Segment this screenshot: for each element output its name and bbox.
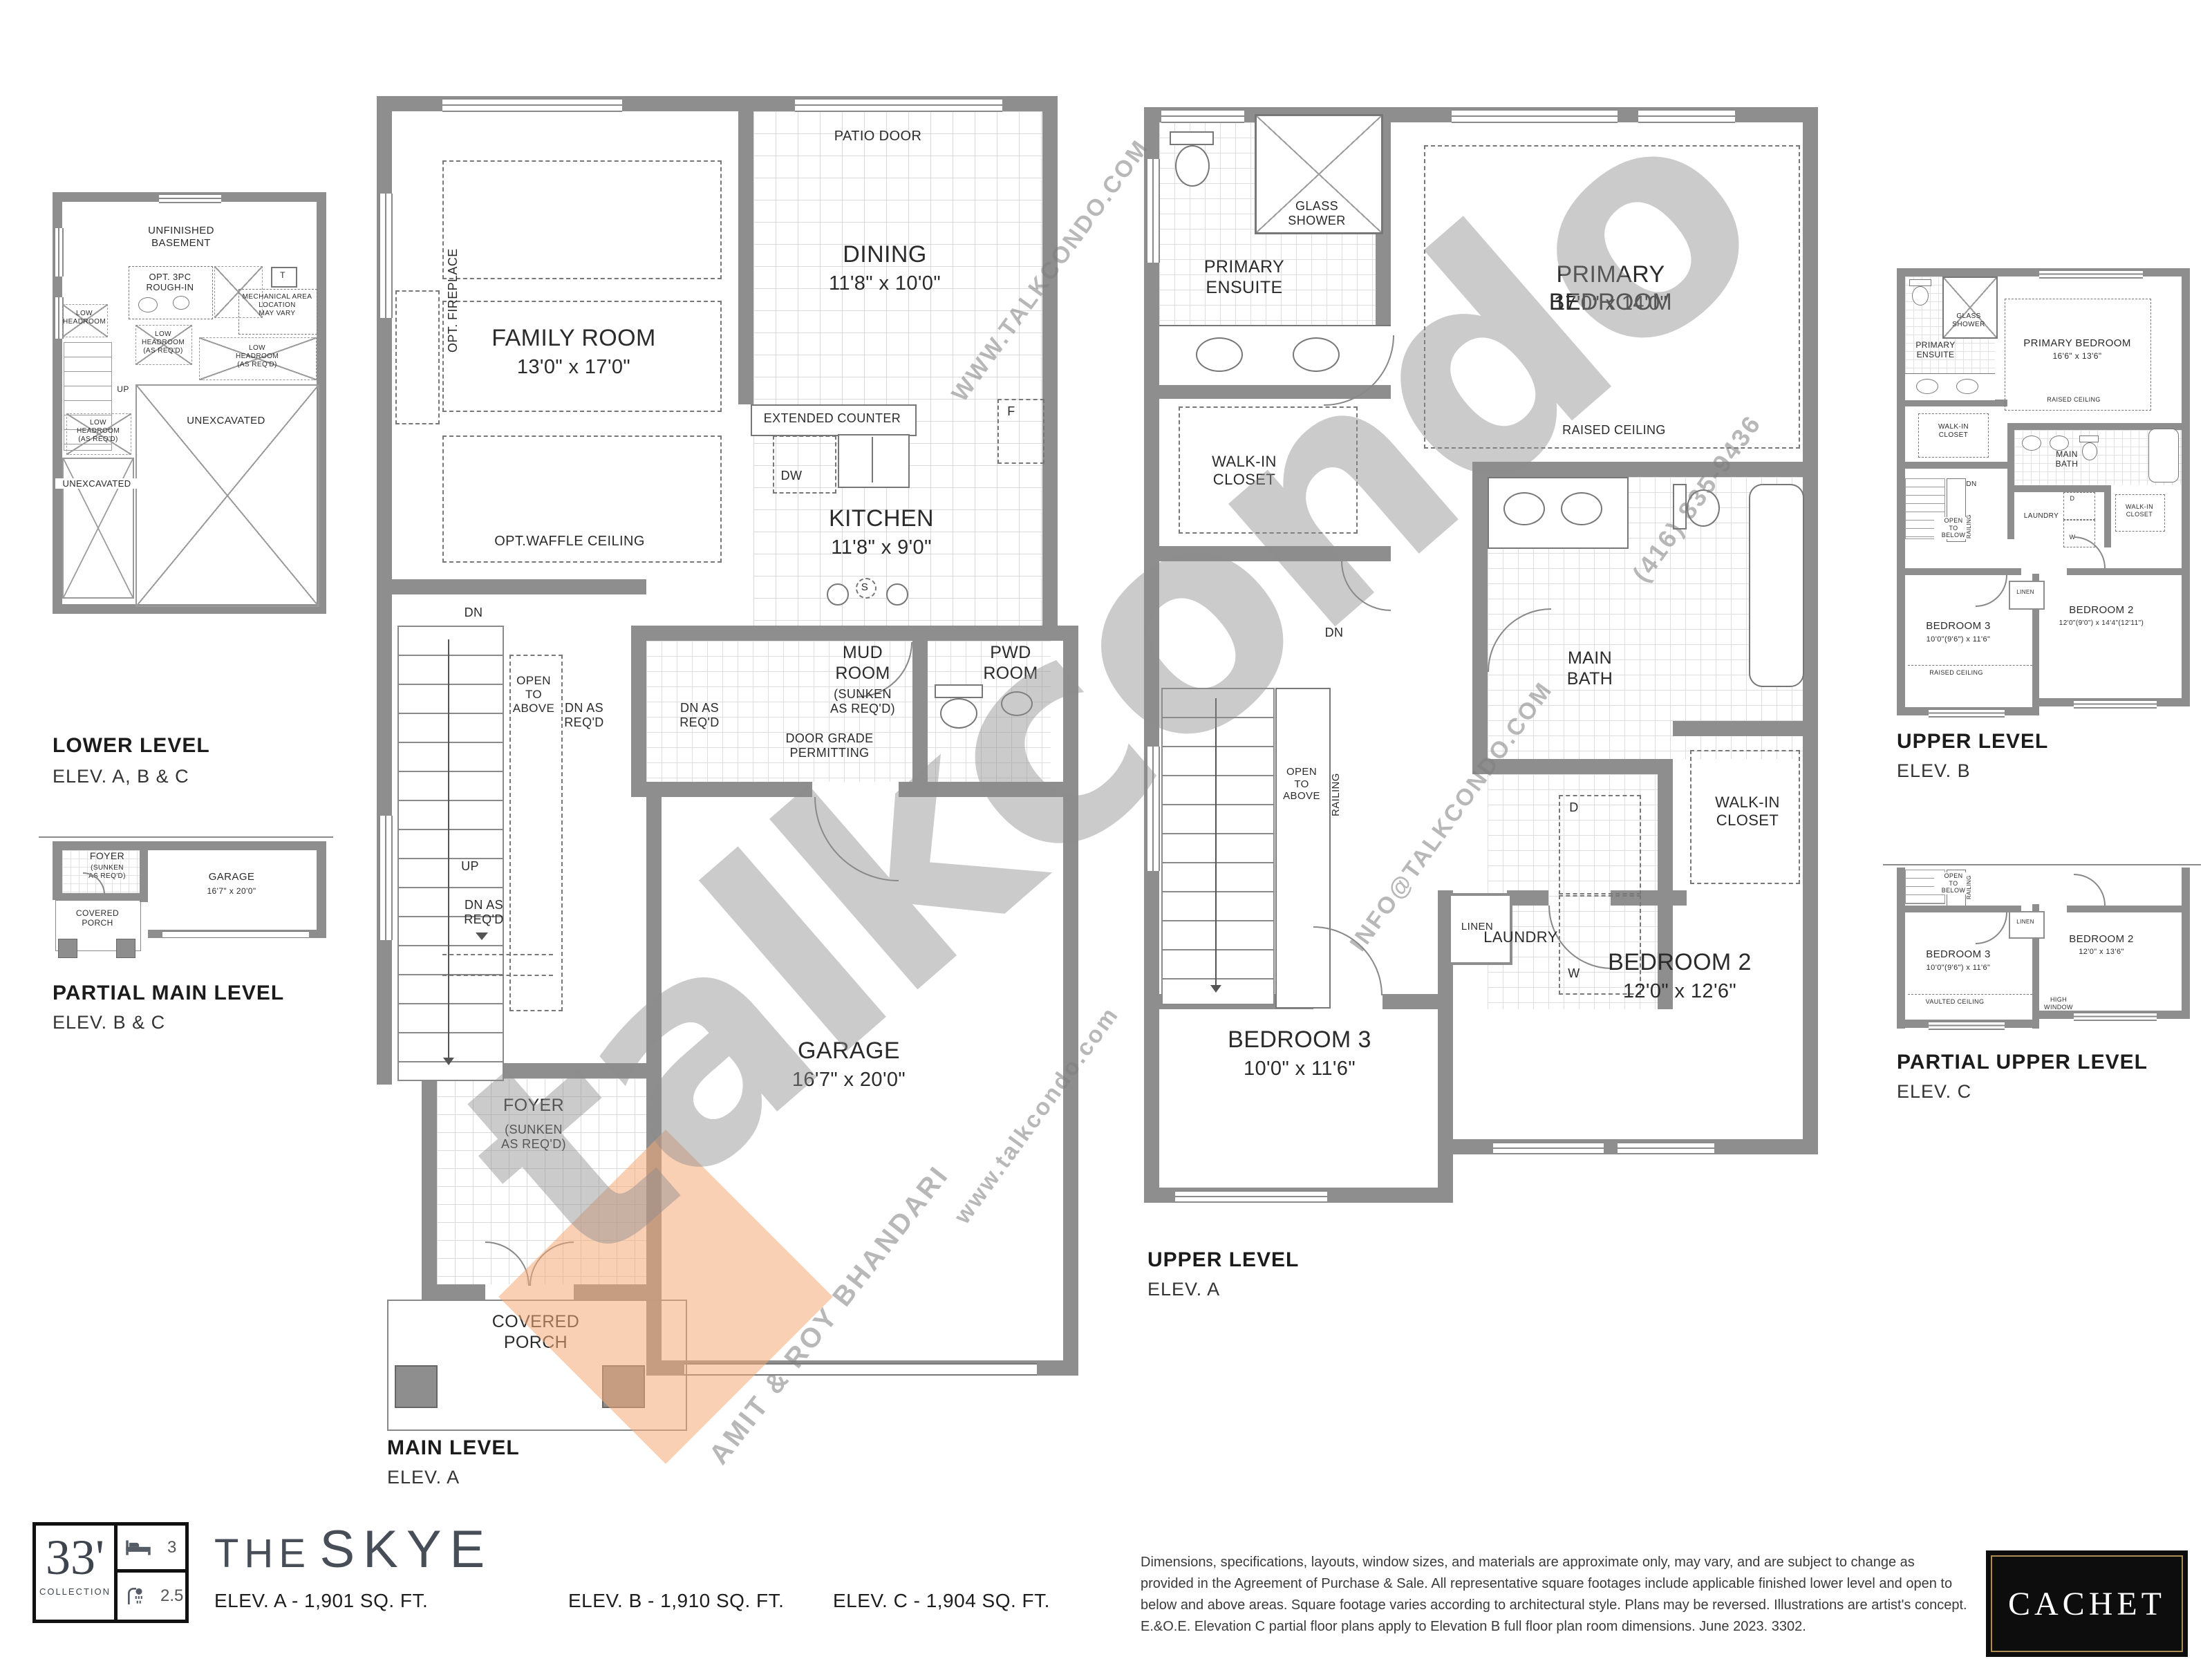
collection-size: 33' [36,1533,114,1582]
decor [124,1585,148,1607]
cut-line [1883,864,2201,865]
model-name-skye: SKYE [319,1520,493,1579]
high-window-label: HIGH WINDOW [2031,996,2086,1011]
door-arc [2074,874,2106,906]
decor: 2.5 [118,1573,185,1620]
decor [138,1596,140,1599]
partial-upper-c-elev: ELEV. C [1897,1081,1971,1103]
model-name: THE SKYE [214,1519,493,1580]
partial-upper-c-title: PARTIAL UPPER LEVEL [1897,1051,2148,1074]
railing-label: RAILING [1966,872,1973,903]
bedroom3-dims: 10'0"(9'6") x 11'6" [1903,964,2014,973]
model-name-the: THE [214,1531,311,1576]
wall [2182,868,2190,1019]
bed-icon [124,1539,152,1557]
decor [135,1596,137,1599]
disclaimer-text: Dimensions, specifications, layouts, win… [1141,1552,1970,1638]
decor [129,1588,136,1604]
decor [126,1546,150,1551]
bedroom3-label: BEDROOM 3 [1903,948,2014,961]
decor [126,1551,129,1555]
decor: 3 [118,1526,185,1573]
decor [140,1601,141,1604]
decor [135,1588,142,1595]
collection-badge: 33' COLLECTION 3 2.5 [32,1522,189,1623]
elev-c-sqft: ELEV. C - 1,904 SQ. FT. [833,1590,1050,1612]
decor [135,1588,142,1604]
linen-label: LINEN [2009,919,2042,925]
wall [1897,906,2021,912]
decor [137,1601,138,1604]
floorplan-sheet: PATIO DOOR DINING 11'8" x 10'0" FAMILY R… [0,0,2212,1659]
decor [126,1540,150,1555]
vaulted-ceiling-label: VAULTED CEILING [1915,998,1995,1006]
decor [148,1551,151,1555]
builder-logo: CACHET [1986,1550,2188,1657]
partial-upper-c-plan: OPEN TO BELOW RAILING LINEN BEDROOM 3 10… [0,0,2212,1659]
decor [124,1539,152,1557]
decor [129,1542,139,1546]
bedroom2-dims: 12'0" x 13'6" [2046,948,2157,957]
bedroom2-label: BEDROOM 2 [2046,933,2157,946]
baths-count: 2.5 [160,1586,183,1606]
window [2074,1012,2157,1021]
decor [141,1596,142,1599]
elev-a-sqft: ELEV. A - 1,901 SQ. FT. [214,1590,428,1612]
wall [2067,906,2190,912]
window [1929,1021,2005,1030]
elev-b-sqft: ELEV. B - 1,910 SQ. FT. [568,1590,784,1612]
beds-count: 3 [167,1538,176,1557]
shower-icon [124,1585,148,1607]
collection-word: COLLECTION [36,1586,114,1597]
decor [129,1588,136,1604]
builder-name: CACHET [1986,1550,2188,1657]
door-arc [1976,912,2007,944]
collection-cell: 33' COLLECTION [36,1526,118,1620]
decor: 3 2.5 [118,1526,185,1620]
